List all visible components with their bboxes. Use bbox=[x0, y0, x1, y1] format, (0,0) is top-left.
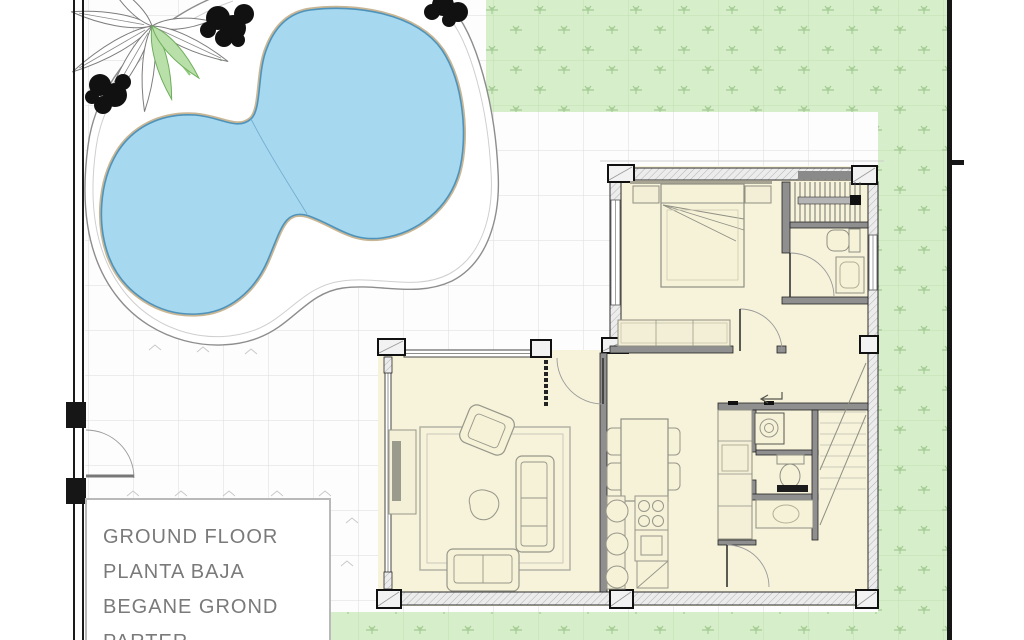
lawn-right bbox=[878, 0, 947, 640]
floor-label-spanish: PLANTA BAJA bbox=[103, 555, 329, 590]
lawn-bottom bbox=[325, 612, 947, 640]
double-bed bbox=[661, 184, 744, 287]
toilet-bowl-top bbox=[827, 230, 849, 251]
nightstand-left bbox=[633, 186, 659, 203]
floor-plan-page: GROUND FLOOR PLANTA BAJA BEGANE GROND PA… bbox=[0, 0, 1024, 640]
stove bbox=[635, 496, 668, 530]
toilet-tank-top bbox=[849, 229, 860, 252]
boundary-right bbox=[947, 0, 952, 640]
washing-machine bbox=[755, 413, 784, 444]
sofa bbox=[516, 456, 554, 552]
loveseat bbox=[447, 549, 519, 591]
coffee-table bbox=[469, 490, 499, 520]
floor-label-romanian: PARTER bbox=[103, 625, 329, 640]
sink-unit bbox=[637, 561, 668, 588]
wardrobe bbox=[618, 320, 730, 346]
gate-post bbox=[66, 478, 86, 504]
floor-label-english: GROUND FLOOR bbox=[103, 520, 329, 555]
oven bbox=[635, 530, 668, 561]
floor-label-dutch: BEGANE GROND bbox=[103, 590, 329, 625]
title-block-panel: GROUND FLOOR PLANTA BAJA BEGANE GROND PA… bbox=[85, 498, 331, 640]
shower-screen bbox=[777, 485, 808, 492]
vanity-lower bbox=[756, 500, 813, 528]
tall-cabinets bbox=[718, 410, 752, 539]
boundary-tick bbox=[947, 160, 964, 165]
tv-cabinet bbox=[389, 430, 416, 514]
lawn-top bbox=[486, 0, 947, 112]
dining-table bbox=[621, 419, 668, 501]
nightstand-right bbox=[745, 186, 771, 203]
gate-post bbox=[66, 402, 86, 428]
